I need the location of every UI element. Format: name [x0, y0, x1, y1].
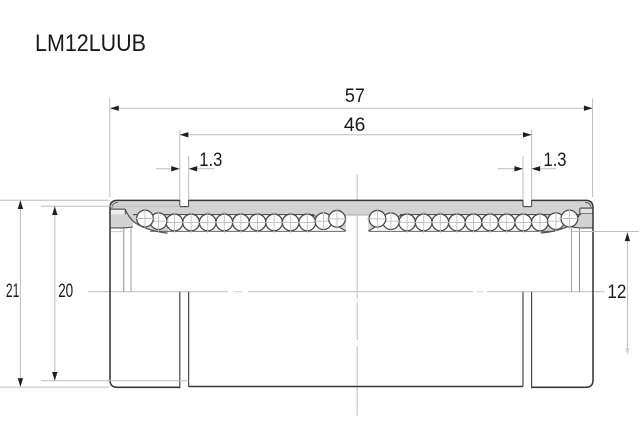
svg-text:1.3: 1.3: [544, 149, 567, 171]
svg-text:21: 21: [6, 280, 20, 302]
svg-text:12: 12: [607, 281, 626, 303]
svg-text:1.3: 1.3: [199, 149, 222, 171]
svg-text:LM12LUUB: LM12LUUB: [35, 30, 146, 57]
svg-text:46: 46: [344, 114, 366, 136]
svg-text:57: 57: [345, 85, 365, 107]
svg-text:20: 20: [58, 280, 73, 302]
